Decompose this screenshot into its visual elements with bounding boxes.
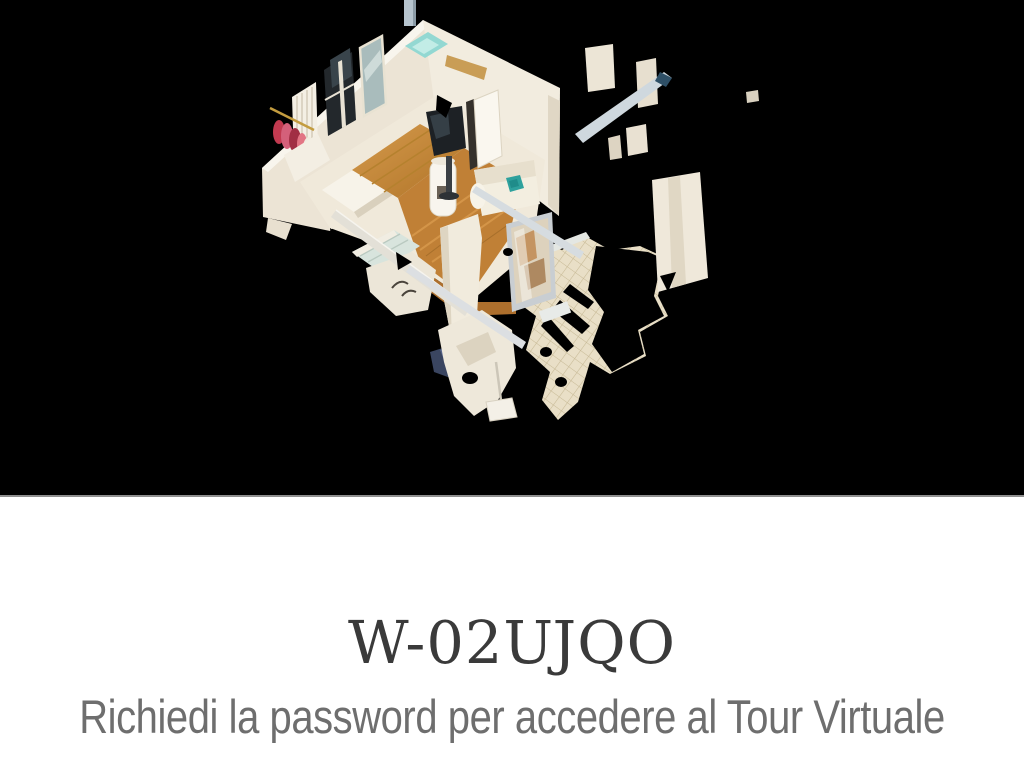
dollhouse-render [0,0,1024,495]
stove [430,157,456,216]
password-prompt-text: Richiedi la password per accedere al Tou… [77,691,947,743]
tour-code-title: W-02UJQO [0,609,1024,677]
tour-3d-preview [0,0,1024,497]
wall-mirror [360,36,386,116]
interior-door [466,90,502,170]
tour-landing-page: W-02UJQO Richiedi la password per accede… [0,0,1024,768]
tour-info-section: W-02UJQO Richiedi la password per accede… [0,497,1024,768]
